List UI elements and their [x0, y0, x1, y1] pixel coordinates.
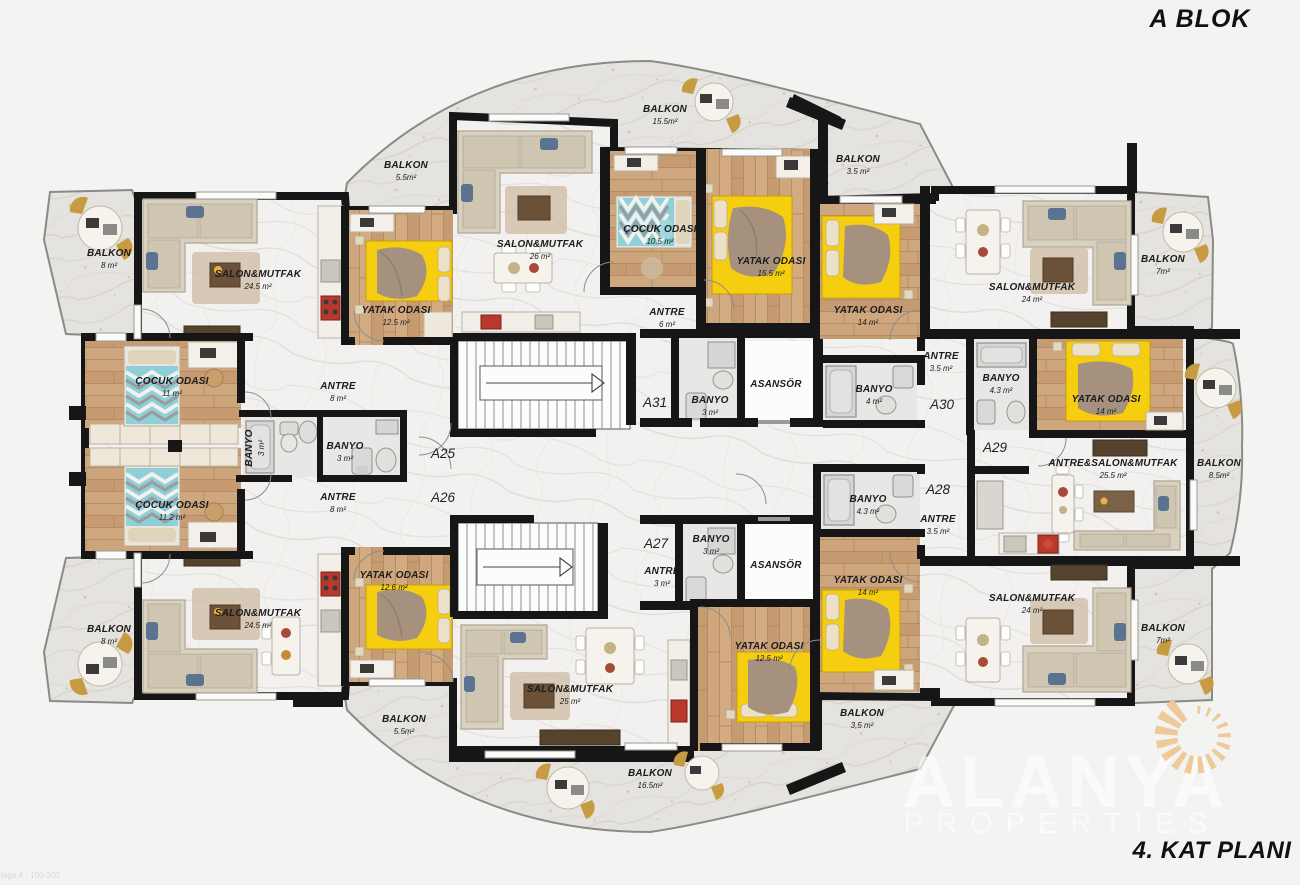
svg-text:ÇOCUK ODASI: ÇOCUK ODASI: [135, 376, 208, 387]
svg-text:12.6 m²: 12.6 m²: [380, 583, 407, 592]
svg-text:16.5m²: 16.5m²: [638, 781, 663, 790]
svg-text:14 m²: 14 m²: [858, 588, 879, 597]
svg-text:4. KAT PLANI: 4. KAT PLANI: [1132, 837, 1293, 864]
svg-text:ANTRE: ANTRE: [922, 351, 959, 362]
svg-text:3 m²: 3 m²: [337, 454, 353, 463]
svg-text:A26: A26: [430, 490, 456, 505]
svg-text:BALKON: BALKON: [840, 708, 885, 719]
svg-text:SALON&MUTFAK: SALON&MUTFAK: [989, 282, 1076, 293]
svg-text:SALON&MUTFAK: SALON&MUTFAK: [527, 684, 614, 695]
svg-text:ANTRE: ANTRE: [919, 514, 956, 525]
svg-text:YATAK ODASI: YATAK ODASI: [735, 641, 804, 652]
svg-text:A31: A31: [642, 395, 667, 410]
svg-text:A29: A29: [982, 440, 1008, 455]
svg-text:12.5 m²: 12.5 m²: [755, 654, 782, 663]
svg-text:10.5 m²: 10.5 m²: [646, 237, 673, 246]
svg-text:A25: A25: [430, 446, 456, 461]
svg-text:BALKON: BALKON: [1141, 254, 1186, 265]
svg-text:24 m²: 24 m²: [1021, 295, 1043, 304]
svg-text:3.5 m²: 3.5 m²: [847, 167, 870, 176]
svg-text:5.5m²: 5.5m²: [396, 173, 417, 182]
svg-text:Grundriss–Etage 4 · 100-300: Grundriss–Etage 4 · 100-300: [0, 871, 60, 880]
svg-text:3 m²: 3 m²: [257, 440, 266, 456]
svg-text:YATAK ODASI: YATAK ODASI: [360, 570, 429, 581]
svg-text:SALON&MUTFAK: SALON&MUTFAK: [497, 239, 584, 250]
svg-text:A27: A27: [643, 536, 669, 551]
svg-text:11.2 m²: 11.2 m²: [159, 513, 186, 522]
svg-text:BANYO: BANYO: [692, 534, 729, 545]
svg-text:BANYO: BANYO: [855, 384, 892, 395]
svg-text:12.5 m²: 12.5 m²: [382, 318, 409, 327]
svg-text:ANTRE&SALON&MUTFAK: ANTRE&SALON&MUTFAK: [1047, 458, 1178, 469]
svg-text:25 m²: 25 m²: [559, 697, 581, 706]
svg-text:BALKON: BALKON: [384, 160, 429, 171]
svg-text:26 m²: 26 m²: [529, 252, 551, 261]
svg-text:YATAK ODASI: YATAK ODASI: [1072, 394, 1141, 405]
svg-text:SALON&MUTFAK: SALON&MUTFAK: [989, 593, 1076, 604]
svg-text:SALON&MUTFAK: SALON&MUTFAK: [215, 608, 302, 619]
svg-text:BALKON: BALKON: [836, 154, 881, 165]
svg-text:BANYO: BANYO: [691, 395, 728, 406]
svg-text:BANYO: BANYO: [244, 429, 255, 466]
svg-text:ANTRE: ANTRE: [319, 492, 356, 503]
svg-text:BANYO: BANYO: [982, 373, 1019, 384]
svg-text:8.5m²: 8.5m²: [1209, 471, 1230, 480]
svg-text:ANTRE: ANTRE: [643, 566, 680, 577]
svg-text:BANYO: BANYO: [326, 441, 363, 452]
svg-text:15.5 m²: 15.5 m²: [757, 269, 784, 278]
svg-text:14 m²: 14 m²: [1096, 407, 1117, 416]
svg-text:ÇOCUK ODASI: ÇOCUK ODASI: [623, 224, 696, 235]
svg-text:BANYO: BANYO: [849, 494, 886, 505]
svg-text:8 m²: 8 m²: [330, 394, 346, 403]
svg-text:11 m²: 11 m²: [162, 389, 182, 398]
svg-text:7m²: 7m²: [1156, 636, 1170, 645]
svg-text:PROPERTIES: PROPERTIES: [904, 808, 1220, 840]
svg-text:SALON&MUTFAK: SALON&MUTFAK: [215, 269, 302, 280]
svg-text:3 m²: 3 m²: [702, 408, 718, 417]
svg-text:BALKON: BALKON: [382, 714, 427, 725]
svg-text:ÇOCUK ODASI: ÇOCUK ODASI: [135, 500, 208, 511]
svg-text:3.5 m²: 3.5 m²: [927, 527, 950, 536]
svg-text:6 m²: 6 m²: [659, 320, 675, 329]
svg-text:A28: A28: [925, 482, 951, 497]
svg-text:BALKON: BALKON: [87, 248, 132, 259]
svg-text:YATAK ODASI: YATAK ODASI: [362, 305, 431, 316]
svg-text:A BLOK: A BLOK: [1149, 5, 1252, 33]
svg-text:24.5 m²: 24.5 m²: [243, 282, 271, 291]
svg-text:BALKON: BALKON: [1197, 458, 1242, 469]
svg-text:A30: A30: [929, 397, 955, 412]
svg-text:YATAK ODASI: YATAK ODASI: [834, 305, 903, 316]
svg-text:3 m²: 3 m²: [703, 547, 719, 556]
svg-text:24 m²: 24 m²: [1021, 606, 1043, 615]
svg-text:8 m²: 8 m²: [330, 505, 346, 514]
svg-text:BALKON: BALKON: [628, 768, 673, 779]
svg-text:4.3 m²: 4.3 m²: [990, 386, 1013, 395]
svg-text:14 m²: 14 m²: [858, 318, 879, 327]
svg-text:8 m²: 8 m²: [101, 261, 117, 270]
svg-text:ANTRE: ANTRE: [648, 307, 685, 318]
svg-text:8 m²: 8 m²: [101, 637, 117, 646]
svg-text:4.3 m²: 4.3 m²: [857, 507, 880, 516]
svg-text:3.5 m²: 3.5 m²: [930, 364, 953, 373]
svg-text:7m²: 7m²: [1156, 267, 1170, 276]
svg-text:25.5 m²: 25.5 m²: [1098, 471, 1126, 480]
svg-text:BALKON: BALKON: [643, 104, 688, 115]
svg-text:ANTRE: ANTRE: [319, 381, 356, 392]
svg-text:3 m²: 3 m²: [654, 579, 670, 588]
svg-text:YATAK ODASI: YATAK ODASI: [737, 256, 806, 267]
svg-text:5.5m²: 5.5m²: [394, 727, 415, 736]
svg-text:3,5 m²: 3,5 m²: [851, 721, 874, 730]
svg-text:24.5 m²: 24.5 m²: [243, 621, 271, 630]
svg-text:4 m²: 4 m²: [866, 397, 882, 406]
svg-text:BALKON: BALKON: [87, 624, 132, 635]
svg-text:BALKON: BALKON: [1141, 623, 1186, 634]
svg-text:15.5m²: 15.5m²: [653, 117, 678, 126]
svg-text:YATAK ODASI: YATAK ODASI: [834, 575, 903, 586]
svg-text:ASANSÖR: ASANSÖR: [749, 377, 802, 390]
svg-text:ASANSÖR: ASANSÖR: [749, 558, 802, 571]
